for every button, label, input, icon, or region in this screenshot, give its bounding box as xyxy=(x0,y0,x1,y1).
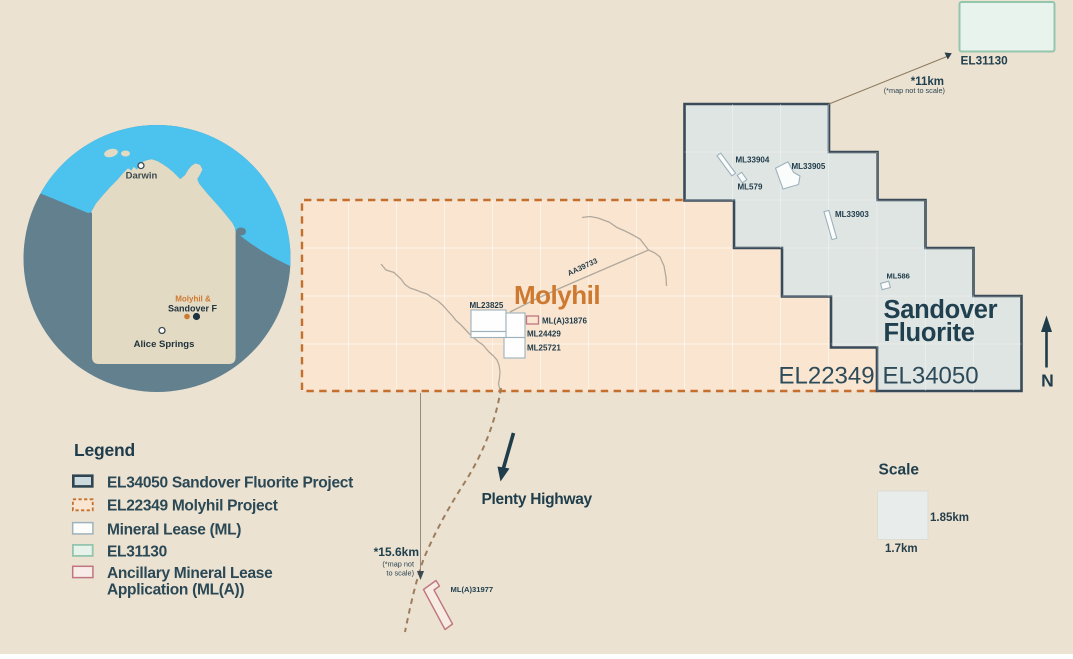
svg-text:Plenty Highway: Plenty Highway xyxy=(482,491,593,508)
svg-text:Legend: Legend xyxy=(74,440,135,460)
svg-text:ML24429: ML24429 xyxy=(527,330,561,339)
svg-text:1.85km: 1.85km xyxy=(930,512,969,524)
svg-text:(*map not: (*map not xyxy=(382,560,414,569)
svg-text:Sandover F: Sandover F xyxy=(168,304,218,314)
svg-text:ML(A)31876: ML(A)31876 xyxy=(542,317,587,326)
svg-text:ML586: ML586 xyxy=(887,272,910,281)
svg-text:EL34050 Sandover Fluorite Proj: EL34050 Sandover Fluorite Project xyxy=(107,475,353,492)
svg-text:Molyhil &: Molyhil & xyxy=(175,295,211,304)
svg-text:ML33905: ML33905 xyxy=(792,162,826,171)
svg-text:Darwin: Darwin xyxy=(126,171,158,182)
svg-text:1.7km: 1.7km xyxy=(885,543,918,555)
svg-text:ML23825: ML23825 xyxy=(470,301,504,310)
svg-text:ML25721: ML25721 xyxy=(527,344,561,353)
svg-text:Application (ML(A)): Application (ML(A)) xyxy=(107,582,244,599)
svg-text:EL31130: EL31130 xyxy=(961,54,1009,68)
svg-text:EL31130: EL31130 xyxy=(107,544,167,561)
svg-text:ML579: ML579 xyxy=(738,183,763,192)
svg-text:Mineral Lease (ML): Mineral Lease (ML) xyxy=(107,522,241,539)
svg-text:ML(A)31977: ML(A)31977 xyxy=(451,585,494,594)
svg-text:Molyhil: Molyhil xyxy=(514,280,600,310)
svg-text:to scale): to scale) xyxy=(386,569,414,578)
svg-text:ML33903: ML33903 xyxy=(835,210,869,219)
svg-text:(*map not to scale): (*map not to scale) xyxy=(884,86,945,95)
svg-text:EL22349 Molyhil Project: EL22349 Molyhil Project xyxy=(107,498,278,515)
svg-text:Fluorite: Fluorite xyxy=(884,319,975,347)
svg-text:Scale: Scale xyxy=(879,462,920,479)
svg-text:N: N xyxy=(1041,371,1054,391)
svg-text:*15.6km: *15.6km xyxy=(374,545,419,559)
svg-text:ML33904: ML33904 xyxy=(736,156,770,165)
svg-text:EL34050: EL34050 xyxy=(883,363,979,390)
svg-text:Alice Springs: Alice Springs xyxy=(134,339,195,350)
svg-text:Ancillary Mineral Lease: Ancillary Mineral Lease xyxy=(107,565,273,582)
svg-text:EL22349: EL22349 xyxy=(779,363,875,390)
